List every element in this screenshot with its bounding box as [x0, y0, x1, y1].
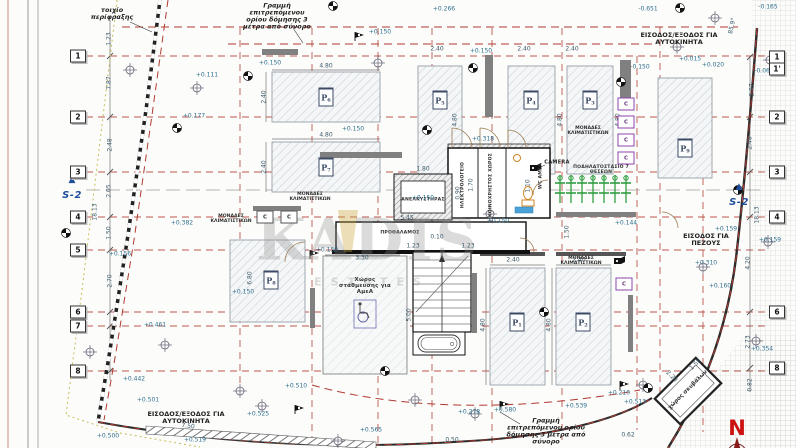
- marker-flag-icon: [355, 32, 364, 41]
- benchmark-icon: [233, 384, 247, 398]
- bicycle-icon: [588, 175, 598, 203]
- survey-point-icon: [617, 78, 626, 87]
- benchmark-icon: [371, 56, 385, 70]
- drawing-sheet: τοιχίο περίφραξης Γραμμή επιτρεπόμενου ο…: [0, 0, 796, 448]
- survey-point-icon: [173, 124, 182, 133]
- benchmark-icon: [158, 338, 172, 352]
- bicycle-icon: [555, 175, 565, 203]
- benchmark-icon: [670, 40, 684, 54]
- survey-point-icon: [644, 384, 653, 393]
- bicycle-icon: [566, 175, 576, 203]
- staircase: [413, 252, 471, 332]
- marker-flag-icon: [310, 250, 319, 259]
- survey-point-icon: [329, 2, 338, 11]
- survey-point-icon: [676, 4, 685, 13]
- benchmark-icon: [696, 260, 710, 274]
- site-plan-drawing: [0, 0, 796, 448]
- bicycle-icon: [610, 175, 620, 203]
- bathroom: [413, 332, 465, 355]
- benchmark-icon: [190, 81, 204, 95]
- service-rooms: [448, 148, 550, 218]
- survey-point-icon: [469, 64, 478, 73]
- survey-point-icon: [62, 229, 71, 238]
- benchmark-icon: [408, 393, 422, 407]
- benchmark-icon: [123, 63, 137, 77]
- marker-flag-icon: [620, 381, 629, 390]
- crosswalk-hatch: [146, 426, 376, 448]
- vestibule-room: [336, 222, 526, 252]
- benchmark-icon: [83, 345, 97, 359]
- survey-point-icon: [244, 72, 253, 81]
- survey-point-icon: [540, 308, 549, 317]
- survey-point-icon: [734, 186, 743, 195]
- camera-icon: [614, 256, 625, 264]
- marker-flag-icon: [500, 401, 509, 410]
- survey-point-icon: [381, 367, 390, 376]
- bicycle-icon: [599, 175, 609, 203]
- benchmark-icon: [708, 11, 722, 25]
- benchmark-icon: [468, 407, 482, 421]
- bicycle-icon: [621, 175, 631, 203]
- sheet-edge-lines: [8, 0, 38, 448]
- bicycle-icon: [577, 175, 587, 203]
- survey-point-icon: [423, 126, 432, 135]
- marker-flag-icon: [295, 405, 304, 414]
- benchmark-icon: [255, 399, 269, 413]
